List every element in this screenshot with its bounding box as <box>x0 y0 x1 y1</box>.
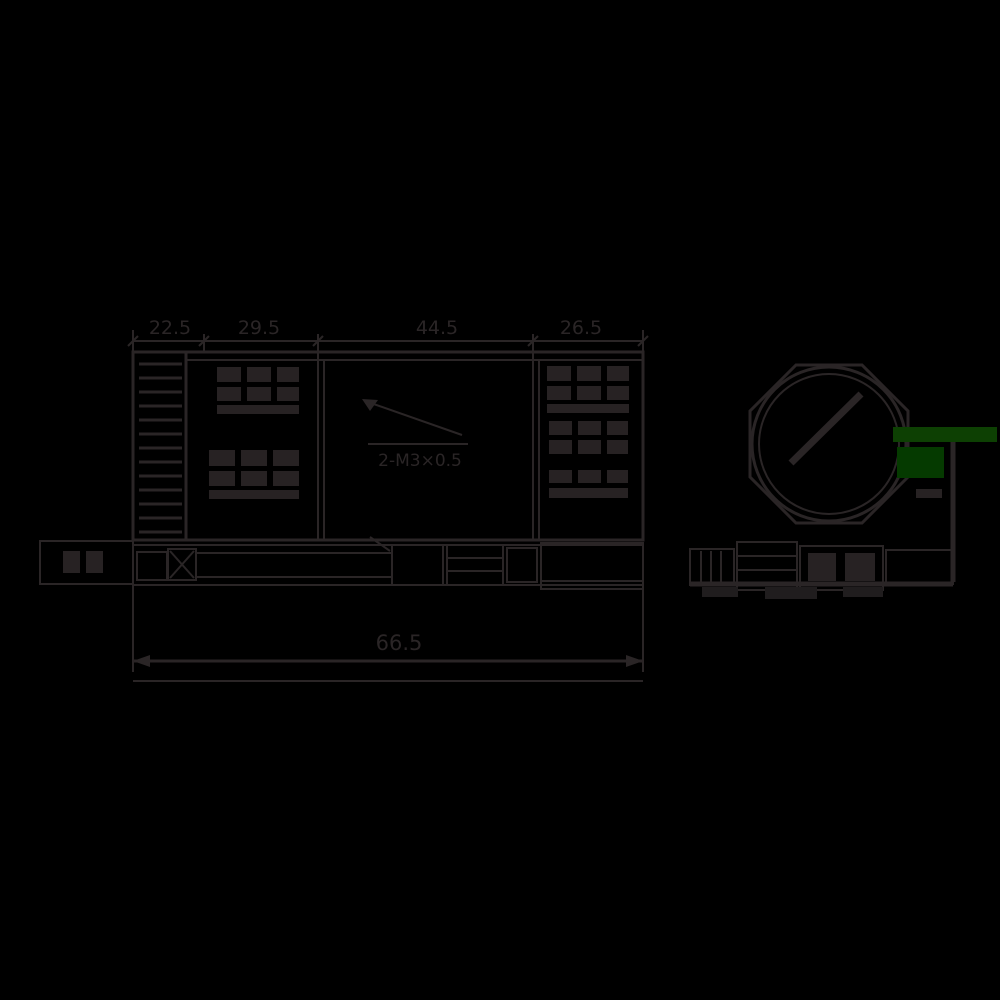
bottom-strip-outline <box>133 545 643 585</box>
heatsink-fins <box>139 352 186 540</box>
terminal-cluster-left-top <box>217 367 299 414</box>
terminal-cluster-left-bottom <box>209 450 299 499</box>
connector-pin <box>86 551 103 573</box>
dim-label-2: 29.5 <box>238 317 280 339</box>
strip-segment <box>392 545 443 585</box>
connector-pin <box>63 551 80 573</box>
mount-tab <box>137 552 167 580</box>
bottom-dim-label: 66.5 <box>376 631 423 655</box>
leader-annotation: 2-M3×0.5 <box>362 399 468 471</box>
front-view: 22.5 29.5 44.5 26.5 <box>40 317 648 681</box>
dimension-drawing: 22.5 29.5 44.5 26.5 <box>0 0 1000 1000</box>
knob-slot-slash <box>791 394 861 463</box>
leader-label: 2-M3×0.5 <box>378 451 462 471</box>
shadow-step <box>843 587 883 597</box>
strip-segment <box>507 548 537 582</box>
shadow-step <box>765 587 817 599</box>
bottom-side-view <box>40 537 643 589</box>
side-block <box>886 550 953 584</box>
drawing-canvas: 22.5 29.5 44.5 26.5 <box>0 0 1000 1000</box>
dim-label-3: 44.5 <box>416 317 458 339</box>
strip-segment <box>541 543 643 589</box>
dim-label-4: 26.5 <box>560 317 602 339</box>
bracket-nub <box>916 489 942 498</box>
bottom-dimension: 66.5 <box>133 585 643 681</box>
green-panel-block <box>897 447 944 478</box>
shadow-step <box>702 587 738 597</box>
knob-front-view <box>750 365 908 523</box>
green-panel-bar <box>893 427 997 442</box>
knob-outer-circle <box>752 367 906 521</box>
side-detail <box>845 553 875 581</box>
terminal-cluster-right-middle <box>549 421 628 454</box>
terminal-cluster-right-bottom <box>549 470 628 498</box>
strip-segment <box>447 545 503 585</box>
panel-highlight <box>893 427 997 478</box>
knob-inner-circle <box>759 374 899 514</box>
dim-label-1: 22.5 <box>149 317 191 339</box>
terminal-cluster-right-top <box>547 366 629 413</box>
side-detail <box>808 553 836 581</box>
